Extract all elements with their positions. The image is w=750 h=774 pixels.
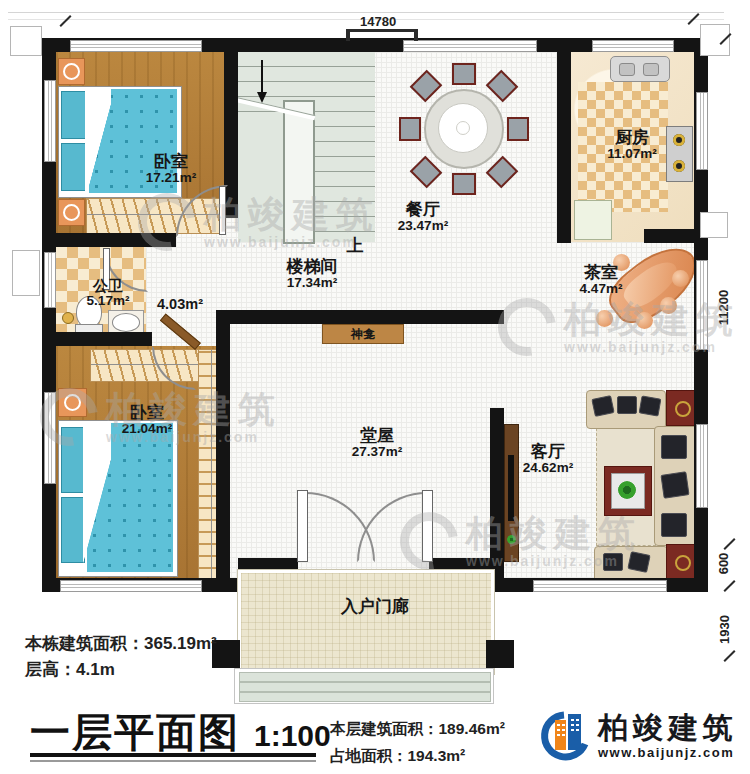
title-underline-thin — [30, 760, 316, 762]
window-sill — [10, 26, 42, 56]
tea-stool-icon — [596, 310, 613, 327]
window-dining-top — [403, 40, 537, 52]
stats-total-area: 本栋建筑面积：365.19m² — [25, 632, 217, 655]
porch-label: 入户门廊 — [318, 598, 432, 616]
title-underline — [30, 753, 316, 757]
up-label: 上 — [338, 237, 372, 255]
coffee-table-icon — [604, 466, 652, 516]
brand-name: 柏竣建筑 — [598, 713, 738, 743]
hall-label: 堂屋 27.37m² — [332, 427, 422, 459]
stairs-treads-right — [307, 52, 375, 240]
dim-right-lower: 1930 — [717, 615, 732, 644]
window-bedroom2-bottom — [60, 580, 202, 592]
dim-top-line — [346, 29, 418, 32]
dining-label: 餐厅 23.47m² — [378, 201, 468, 233]
sofa-icon — [594, 546, 668, 582]
wall-kitchen-bottom — [644, 229, 694, 243]
floor-drain-icon — [62, 312, 74, 324]
window-bedroom2-left — [44, 392, 56, 484]
nightstand-icon — [58, 199, 85, 226]
chair-icon — [452, 173, 476, 195]
window-sill — [12, 250, 40, 296]
tea-stool-icon — [672, 270, 689, 287]
overhang-line — [8, 12, 724, 13]
kitchen-label: 厨房 11.07m² — [587, 129, 677, 161]
bedroom1-label: 卧室 17.21m² — [126, 153, 216, 185]
stats-floor-area: 本层建筑面积：189.46m² — [330, 719, 505, 740]
dim-right-upper: 600 — [716, 553, 731, 575]
chair-icon — [452, 63, 476, 85]
wall-hall-left — [216, 310, 230, 592]
dim-tick-icon — [59, 15, 71, 27]
tea-stool-icon — [636, 312, 653, 329]
window-tearoom-right — [696, 260, 708, 350]
window-living-right — [696, 424, 708, 508]
window-kitchen-top — [592, 40, 674, 52]
brand-logo-icon — [536, 710, 590, 762]
page-title: 一层平面图 — [30, 710, 240, 754]
floor-plan-sheet: 神龛 卧室 17.21m² 楼梯间 17.34m² — [0, 0, 750, 774]
window-bedroom1-left — [44, 80, 56, 162]
dim-right-height: 11200 — [716, 290, 731, 325]
brand-url: www.baijunjz.com — [598, 746, 738, 759]
wall-hall-top — [216, 310, 504, 324]
window-sill — [700, 212, 728, 238]
stats-floor-height: 层高：4.1m — [25, 658, 115, 681]
dim-top-end — [414, 29, 418, 41]
sofa-icon — [586, 390, 666, 429]
up-arrow-icon — [261, 60, 263, 94]
wall-bedroom1-bottom — [42, 233, 176, 247]
porch-column — [486, 640, 514, 668]
window-living-bottom — [533, 580, 667, 592]
bedroom2-label: 卧室 21.04m² — [102, 404, 192, 436]
dim-top: 14780 — [360, 14, 396, 29]
entry-door-leaf — [297, 490, 308, 562]
up-arrow-head-icon — [257, 92, 267, 103]
window-bathroom-left — [44, 252, 56, 308]
tearoom-label: 茶室 4.47m² — [556, 264, 646, 296]
kitchen-sink-icon — [610, 56, 670, 82]
entry-door-leaf — [422, 490, 433, 562]
chair-icon — [399, 117, 421, 141]
scale-label: 1:100 — [254, 719, 331, 752]
nightstand-icon — [58, 58, 85, 85]
living-label: 客厅 24.62m² — [503, 443, 593, 475]
dim-tick-icon — [723, 580, 735, 592]
shrine-label: 神龛 — [351, 326, 375, 343]
dim-top-end — [346, 29, 350, 41]
dim-tick-icon — [723, 650, 735, 662]
window-kitchen-right — [696, 92, 708, 170]
window-bedroom1-top — [70, 40, 202, 52]
fridge-icon — [574, 200, 612, 240]
shrine: 神龛 — [322, 324, 404, 344]
corridor-area-label: 4.03m² — [135, 297, 225, 312]
brand-logo: 柏竣建筑 www.baijunjz.com — [536, 710, 738, 762]
stairs-rail — [283, 100, 315, 244]
porch-floor — [238, 570, 494, 674]
dim-tick-icon — [723, 538, 735, 550]
chair-icon — [507, 117, 529, 141]
dining-table-icon — [424, 89, 504, 169]
tea-stool-icon — [660, 297, 677, 314]
wall-dining-kitchen — [557, 52, 571, 243]
plant-icon — [618, 481, 636, 499]
porch-steps — [234, 668, 494, 704]
wall-hall-living — [490, 408, 504, 588]
stats-footprint: 占地面积：194.3m² — [330, 746, 465, 767]
plant-icon — [507, 535, 516, 544]
bed-icon — [58, 420, 178, 577]
nightstand-icon — [58, 388, 87, 417]
door-leaf — [219, 186, 226, 235]
wall-bathroom-bottom — [42, 332, 152, 346]
stairwell-label: 楼梯间 17.34m² — [262, 258, 362, 290]
washbasin-icon — [112, 313, 140, 332]
sheet-title: 一层平面图1:100 — [30, 705, 331, 760]
